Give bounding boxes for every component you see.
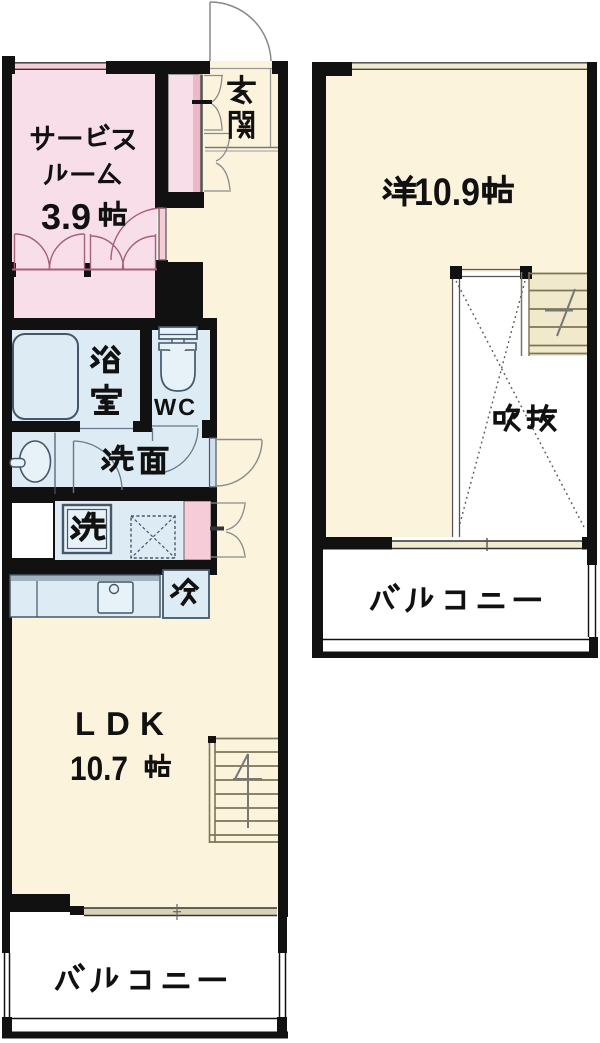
svg-text:10.9: 10.9 <box>414 171 480 214</box>
svg-text:WC: WC <box>154 394 197 420</box>
svg-text:10.7: 10.7 <box>70 750 128 788</box>
svg-text:LDK: LDK <box>75 705 164 742</box>
svg-text:3.9: 3.9 <box>41 196 91 237</box>
